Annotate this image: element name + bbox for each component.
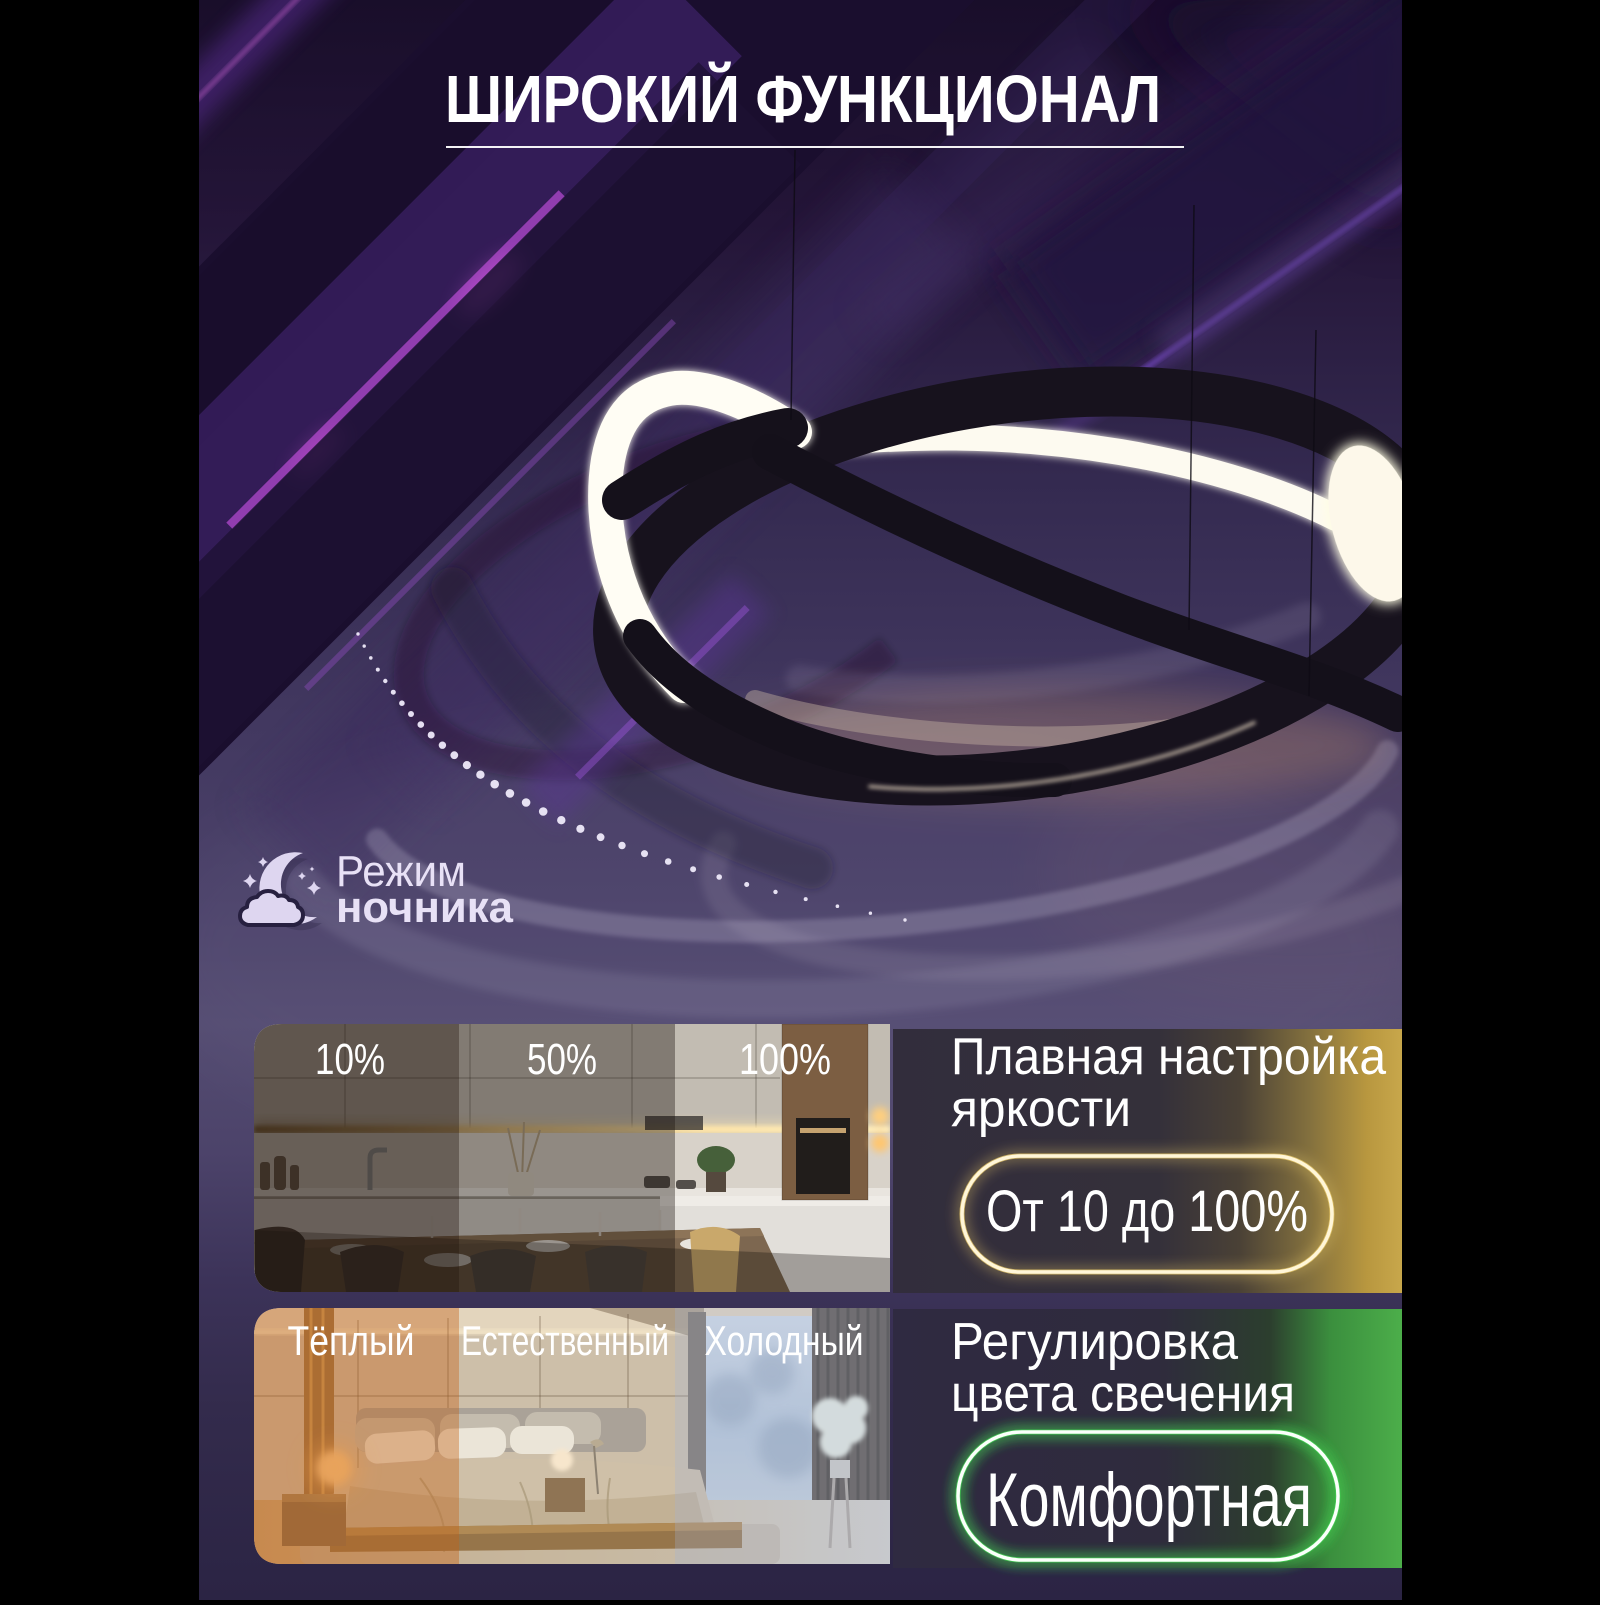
- svg-text:цвета свечения: цвета свечения: [951, 1365, 1295, 1423]
- svg-text:ночника: ночника: [336, 883, 514, 932]
- svg-text:ШИРОКИЙ ФУНКЦИОНАЛ: ШИРОКИЙ ФУНКЦИОНАЛ: [445, 61, 1161, 137]
- svg-text:Комфортная: Комфортная: [986, 1458, 1312, 1543]
- svg-text:От 10 до 100%: От 10 до 100%: [986, 1179, 1308, 1244]
- svg-text:Тёплый: Тёплый: [288, 1317, 415, 1364]
- svg-text:Естественный: Естественный: [461, 1317, 669, 1364]
- svg-text:Плавная настройка: Плавная настройка: [951, 1028, 1386, 1086]
- svg-text:Регулировка: Регулировка: [951, 1313, 1238, 1371]
- svg-text:яркости: яркости: [951, 1080, 1131, 1138]
- svg-text:Холодный: Холодный: [705, 1317, 864, 1364]
- svg-text:50%: 50%: [527, 1035, 597, 1084]
- svg-text:100%: 100%: [739, 1035, 831, 1084]
- svg-text:10%: 10%: [315, 1035, 385, 1084]
